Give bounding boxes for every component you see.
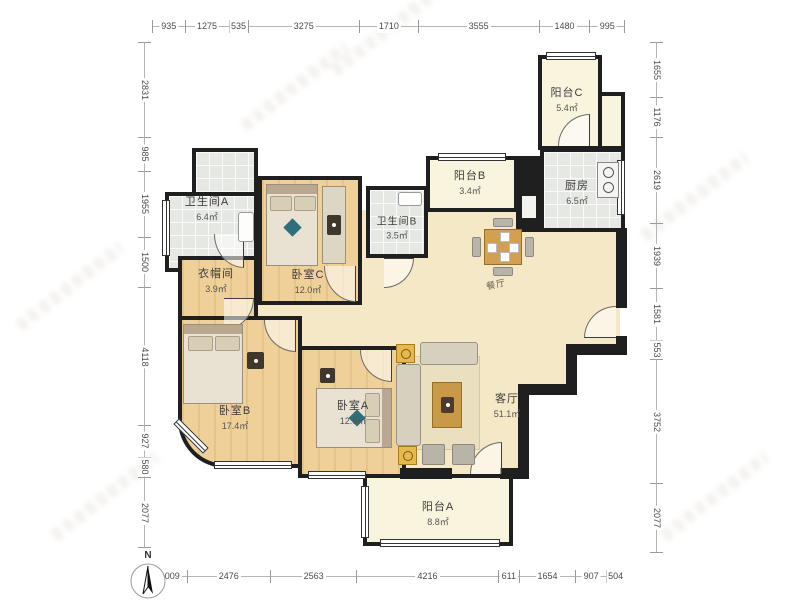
dim-segment: 1939 [650, 223, 663, 287]
dimension-chain-right: 1655117626191939158155337522077 [650, 42, 663, 553]
dim-label: 2619 [650, 168, 663, 192]
dim-label: 504 [606, 570, 625, 583]
dim-segment: 1710 [359, 20, 418, 33]
dim-segment: 2077 [138, 477, 151, 547]
dim-label: 4216 [415, 570, 439, 583]
dining-table-set [472, 218, 534, 276]
north-indicator: N [129, 550, 167, 600]
dim-segment: 985 [138, 137, 151, 171]
wall-living-bottom-right [500, 468, 529, 479]
dim-segment: 1654 [519, 570, 575, 583]
dim-label: 935 [159, 20, 178, 33]
bed-b [183, 324, 243, 404]
watermark [240, 41, 350, 131]
dim-segment: 1581 [650, 288, 663, 341]
dim-segment: 1275 [185, 20, 229, 33]
dim-segment: 535 [229, 20, 248, 33]
watermark [15, 241, 125, 331]
wardrobe-bedroom-c [322, 186, 346, 264]
dim-segment: 2831 [138, 42, 151, 137]
dim-label: 580 [138, 458, 151, 477]
label-bathroom-b: 卫生间B 3.5㎡ [377, 213, 418, 242]
dim-segment: 3752 [650, 359, 663, 483]
dimension-chain-top: 93512755353275171035551480995 [152, 20, 625, 33]
dim-segment: 927 [138, 425, 151, 457]
dim-label: 1955 [138, 192, 151, 216]
dim-label: 1581 [650, 302, 663, 326]
label-kitchen: 厨房 6.5㎡ [565, 177, 589, 207]
floor-plan-canvas: 93512755353275171035551480995 1009247625… [0, 0, 800, 600]
dim-segment: 935 [152, 20, 185, 33]
dim-label: 4118 [138, 345, 151, 368]
dim-label: 1480 [552, 20, 576, 33]
window-balcony-a-bottom [380, 539, 500, 547]
dim-segment: 907 [575, 570, 606, 583]
dim-segment: 1655 [650, 42, 663, 97]
label-balcony-a: 阳台A 8.8㎡ [422, 498, 454, 528]
dim-label: 1939 [650, 244, 663, 268]
dim-label: 535 [229, 20, 248, 33]
dim-label: 2831 [138, 78, 151, 102]
bed-c [266, 184, 318, 266]
armchair-right [452, 444, 475, 465]
duct-shaft-inner [522, 196, 536, 218]
side-table-bottom [398, 446, 417, 465]
dim-segment: 504 [606, 570, 624, 583]
label-balcony-b: 阳台B 3.4㎡ [454, 167, 486, 197]
dimension-chain-left: 28319851955150041189275802077 [138, 42, 151, 548]
dim-label: 985 [138, 145, 151, 164]
dim-label: 1654 [535, 570, 559, 583]
dim-segment: 553 [650, 340, 663, 359]
dim-segment: 611 [498, 570, 519, 583]
dim-segment: 4118 [138, 287, 151, 425]
nightstand-bedroom-b [247, 352, 264, 369]
bathroom-a-sink [238, 212, 254, 242]
side-table-top [396, 344, 415, 363]
dim-label: 611 [500, 570, 518, 583]
dim-segment: 3555 [418, 20, 539, 33]
dim-segment: 1955 [138, 171, 151, 237]
bathroom-b-fixture [398, 192, 422, 206]
dim-label: 3752 [650, 410, 663, 434]
stove-icon [597, 162, 619, 198]
dim-label: 2077 [138, 501, 151, 525]
dim-segment: 995 [589, 20, 624, 33]
dim-segment: 2077 [650, 483, 663, 552]
dim-label: 995 [598, 20, 617, 33]
room-balcony-c-ext [598, 92, 625, 150]
room-bathroom-a-upper [192, 148, 258, 198]
dim-label: 907 [582, 570, 601, 583]
dim-segment: 2476 [187, 570, 270, 583]
dim-label: 553 [650, 341, 663, 360]
dim-label: 2077 [650, 506, 663, 530]
label-closet: 衣帽间 3.9㎡ [198, 265, 234, 295]
dim-segment: 1500 [138, 237, 151, 288]
dimension-chain-bottom: 10092476256342166111654907504 [152, 570, 625, 583]
dim-segment: 1480 [539, 20, 590, 33]
dim-label: 1176 [650, 106, 663, 129]
dim-segment: 2563 [270, 570, 356, 583]
dim-label: 3555 [467, 20, 491, 33]
dim-segment: 3275 [248, 20, 359, 33]
dim-label: 3275 [292, 20, 316, 33]
window-bedroom-a [308, 471, 366, 479]
dim-label: 927 [138, 432, 151, 451]
dim-label: 1655 [650, 58, 663, 82]
north-arrow-icon [129, 562, 167, 600]
dim-label: 2563 [302, 570, 326, 583]
watermark [660, 451, 770, 541]
nightstand-bedroom-a [320, 368, 335, 383]
label-bedroom-a: 卧室A 12.6㎡ [337, 397, 369, 427]
armchair-left [422, 444, 445, 465]
watermark [330, 0, 440, 77]
dim-segment: 580 [138, 457, 151, 477]
label-bathroom-a: 卫生间A 6.4㎡ [185, 193, 229, 223]
window-balcony-c [546, 52, 596, 60]
sofa-left [396, 364, 421, 446]
label-bedroom-b: 卧室B 17.4㎡ [219, 402, 251, 432]
dim-segment: 4216 [356, 570, 497, 583]
dim-label: 1275 [195, 20, 219, 33]
window-balcony-b [438, 153, 506, 161]
dim-segment: 1176 [650, 97, 663, 136]
wall-living-bottom-left [400, 468, 452, 479]
window-bedroom-b [214, 461, 292, 469]
label-living: 客厅 51.1㎡ [494, 390, 521, 420]
dim-label: 1710 [377, 20, 401, 33]
north-label: N [129, 550, 167, 561]
label-bedroom-c: 卧室C 12.0㎡ [292, 266, 325, 296]
dim-segment: 2619 [650, 137, 663, 224]
dim-label: 2476 [217, 570, 241, 583]
window-balcony-a-left [361, 486, 369, 538]
coffee-table [432, 382, 462, 428]
window-bathroom-a [162, 200, 170, 256]
dim-label: 1500 [138, 250, 151, 274]
label-balcony-c: 阳台C 5.4㎡ [551, 84, 584, 114]
wall-right-upper [616, 228, 627, 308]
sofa-top [420, 342, 478, 365]
